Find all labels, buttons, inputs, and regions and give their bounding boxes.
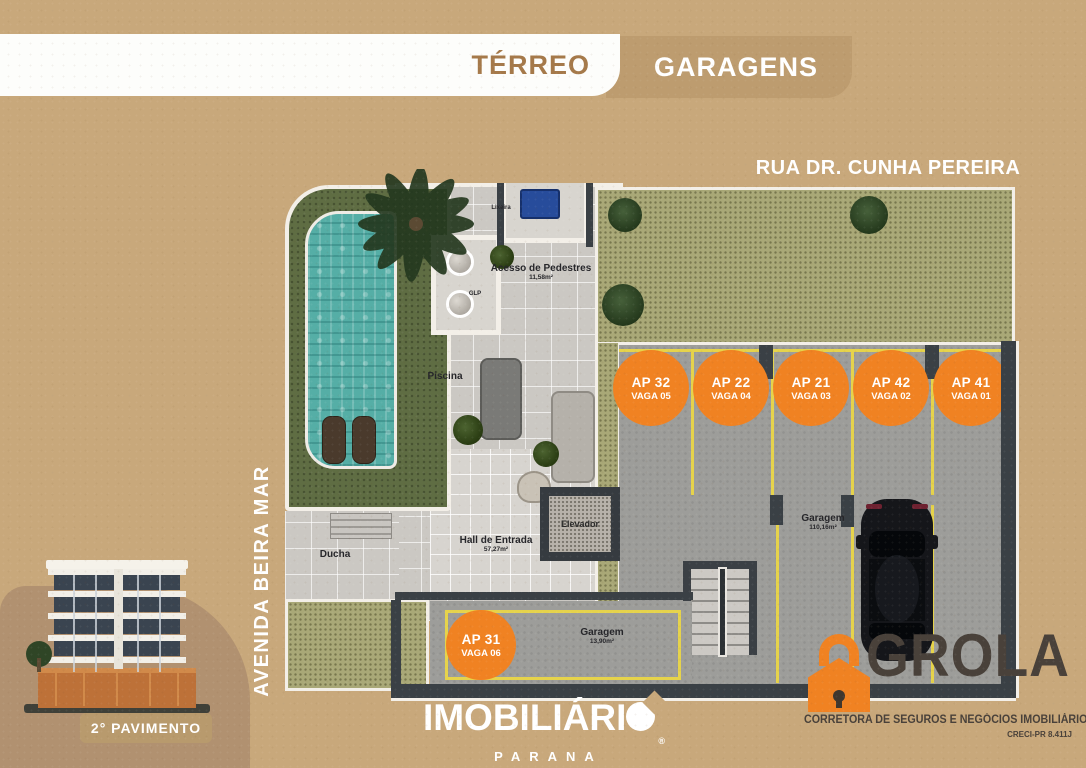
trash-bin bbox=[520, 189, 560, 219]
garage-main-name: Garagem bbox=[767, 513, 879, 524]
corridor-wall bbox=[497, 183, 504, 247]
spot-vaga: VAGA 02 bbox=[871, 391, 911, 402]
deck-steps bbox=[330, 513, 392, 539]
spot-ap: AP 42 bbox=[872, 375, 911, 390]
grola-wordmark: GROLA bbox=[866, 626, 1070, 686]
imobiliario-wordmark: IMOBILIÁRI® bbox=[388, 699, 700, 746]
shower-label: Ducha bbox=[303, 549, 367, 560]
pool-label: Piscina bbox=[403, 371, 487, 382]
bush bbox=[602, 284, 644, 326]
hall-area: 57,27m² bbox=[440, 546, 552, 553]
parking-spot-badge: AP 31 VAGA 06 bbox=[446, 610, 516, 680]
spot-ap: AP 22 bbox=[712, 375, 751, 390]
pool-lounger bbox=[352, 416, 376, 464]
tab-terreo-label: TÉRREO bbox=[471, 50, 590, 81]
parking-spot-badge: AP 32 VAGA 05 bbox=[613, 350, 689, 426]
spot-vaga: VAGA 03 bbox=[791, 391, 831, 402]
parking-spot-badge: AP 41 VAGA 01 bbox=[933, 350, 1009, 426]
stair-rail bbox=[720, 569, 725, 655]
lawn-strip-top bbox=[595, 187, 1015, 345]
street-name-left: AVENIDA BEIRA MAR bbox=[251, 413, 277, 749]
parking-spot-badge: AP 42 VAGA 02 bbox=[853, 350, 929, 426]
garage-strip-area: AP 31 VAGA 06 Garagem 13,90m² bbox=[430, 601, 692, 687]
staircase bbox=[683, 561, 757, 655]
stall-line bbox=[851, 349, 854, 495]
spot-vaga: VAGA 06 bbox=[461, 648, 501, 659]
bush bbox=[608, 198, 642, 232]
hall-label: Hall de Entrada 57,27m² bbox=[440, 535, 552, 553]
imobiliario-o-mark-icon bbox=[626, 702, 655, 731]
pool-lounger bbox=[322, 416, 346, 464]
pedestrian-access-name: Acesso de Pedestres bbox=[481, 263, 601, 274]
potted-plant bbox=[453, 415, 483, 445]
building-card-caption-text: 2° PAVIMENTO bbox=[91, 720, 201, 736]
building-photo bbox=[22, 558, 212, 716]
spot-vaga: VAGA 05 bbox=[631, 391, 671, 402]
wall bbox=[391, 600, 401, 688]
bush bbox=[850, 196, 888, 234]
palm-tree bbox=[341, 169, 491, 287]
garage-small-area-value: 13,90m² bbox=[560, 638, 644, 645]
imobiliario-text: IMOBILIÁRI bbox=[423, 697, 626, 738]
building-card-caption: 2° PAVIMENTO bbox=[80, 713, 212, 743]
flyer-page: GARAGENS TÉRREO RUA DR. CUNHA PEREIRA AV… bbox=[0, 0, 1086, 768]
spot-ap: AP 32 bbox=[632, 375, 671, 390]
keyhole-stem-icon bbox=[836, 698, 842, 708]
spot-vaga: VAGA 04 bbox=[711, 391, 751, 402]
tab-terreo[interactable]: TÉRREO bbox=[0, 34, 620, 96]
shower-label-text: Ducha bbox=[303, 549, 367, 560]
garage-small-name: Garagem bbox=[560, 627, 644, 638]
wall bbox=[395, 592, 693, 600]
pool-label-text: Piscina bbox=[403, 371, 487, 382]
imobiliario-logo: IMOBILIÁRI® PARANA bbox=[388, 699, 700, 764]
parking-spot-badge: AP 21 VAGA 03 bbox=[773, 350, 849, 426]
grola-tagline: CORRETORA DE SEGUROS E NEGÓCIOS IMOBILIÁ… bbox=[804, 714, 1061, 726]
spot-ap: AP 31 bbox=[462, 632, 501, 647]
spot-vaga: VAGA 01 bbox=[951, 391, 991, 402]
garage-small-label: Garagem 13,90m² bbox=[560, 627, 644, 645]
pedestrian-access-label: Acesso de Pedestres 11,58m² bbox=[481, 263, 601, 281]
grola-creci: CRECI-PR 8.411J bbox=[800, 730, 1072, 739]
glp-label: GLP bbox=[457, 291, 493, 298]
sofa bbox=[551, 391, 595, 483]
lawn-patch-bottom bbox=[285, 599, 429, 691]
corridor-wall bbox=[586, 183, 593, 247]
spot-ap: AP 21 bbox=[792, 375, 831, 390]
elevator-label: Elevador bbox=[561, 519, 599, 529]
tab-garagens-label: GARAGENS bbox=[654, 52, 818, 83]
potted-plant bbox=[533, 441, 559, 467]
pedestrian-access-area: 11,58m² bbox=[481, 274, 601, 281]
imobiliario-subtitle: PARANA bbox=[397, 749, 700, 764]
hall-name: Hall de Entrada bbox=[440, 535, 552, 546]
stall-line bbox=[691, 349, 694, 495]
tab-garagens[interactable]: GARAGENS bbox=[606, 36, 852, 98]
trash-niche bbox=[501, 183, 589, 243]
grola-house-lock-icon bbox=[808, 634, 870, 712]
spot-ap: AP 41 bbox=[952, 375, 991, 390]
stall-line bbox=[776, 505, 779, 683]
garage-main-label: Garagem 110,16m² bbox=[767, 513, 879, 531]
registered-mark: ® bbox=[658, 736, 665, 746]
parking-spot-badge: AP 22 VAGA 04 bbox=[693, 350, 769, 426]
elevator-shaft: Elevador bbox=[540, 487, 620, 561]
garage-main-area-value: 110,16m² bbox=[767, 524, 879, 531]
street-name-top: RUA DR. CUNHA PEREIRA bbox=[742, 157, 1034, 180]
